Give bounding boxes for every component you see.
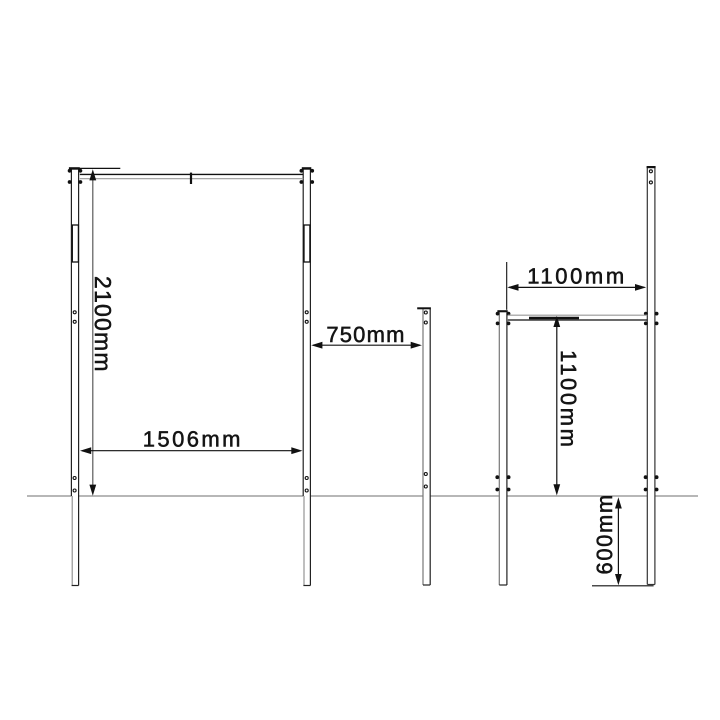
svg-text:600mm: 600mm bbox=[592, 493, 617, 574]
svg-text:1100mm: 1100mm bbox=[556, 350, 581, 450]
svg-text:1506mm: 1506mm bbox=[143, 427, 243, 452]
svg-text:2100mm: 2100mm bbox=[90, 276, 116, 373]
svg-text:1100mm: 1100mm bbox=[527, 264, 627, 289]
svg-text:750mm: 750mm bbox=[326, 322, 405, 347]
